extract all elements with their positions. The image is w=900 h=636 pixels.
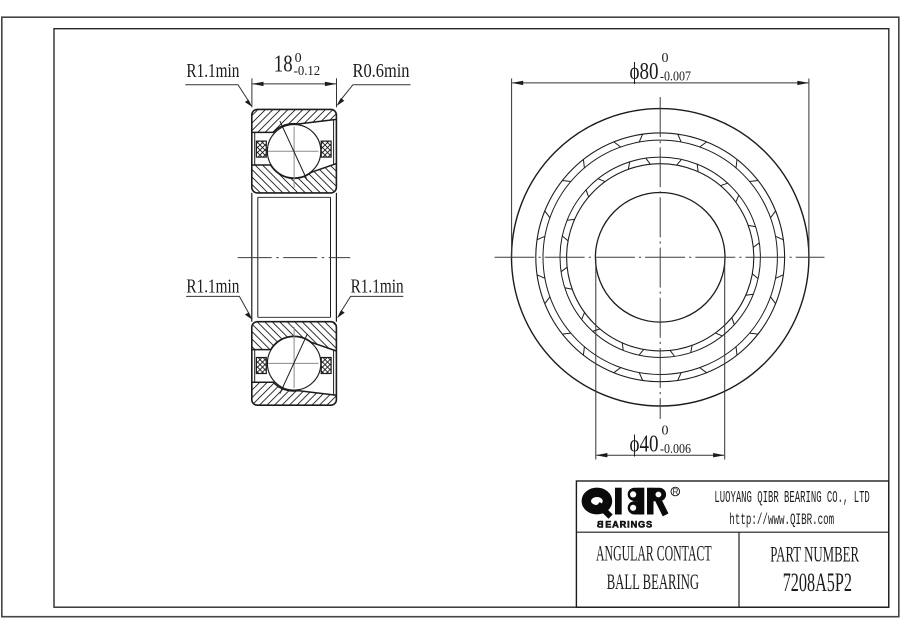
svg-text:R1.1min: R1.1min: [186, 276, 239, 298]
svg-text:BALL BEARING: BALL BEARING: [607, 569, 699, 594]
svg-text:R1.1min: R1.1min: [186, 60, 239, 82]
svg-text:B: B: [597, 520, 604, 530]
svg-text:ϕ80: ϕ80: [630, 59, 659, 85]
svg-text:ANGULAR CONTACT: ANGULAR CONTACT: [596, 541, 712, 566]
svg-text:LUOYANG QIBR BEARING CO., LTD: LUOYANG QIBR BEARING CO., LTD: [714, 488, 869, 507]
svg-text:0: 0: [662, 424, 669, 439]
svg-text:18: 18: [274, 52, 293, 78]
svg-text:7208A5P2: 7208A5P2: [783, 568, 852, 597]
svg-text:-0.007: -0.007: [660, 69, 691, 84]
svg-text:ϕ40: ϕ40: [630, 431, 659, 457]
svg-text:0: 0: [662, 51, 669, 66]
svg-text:R: R: [673, 488, 679, 497]
svg-text:http://www.QIBR.com: http://www.QIBR.com: [729, 511, 834, 529]
svg-text:-0.12: -0.12: [294, 64, 321, 79]
svg-text:PART NUMBER: PART NUMBER: [770, 542, 859, 567]
svg-text:R0.6min: R0.6min: [353, 60, 410, 82]
svg-text:-0.006: -0.006: [660, 442, 691, 457]
svg-text:EARINGS: EARINGS: [605, 520, 652, 530]
svg-text:R1.1min: R1.1min: [351, 276, 404, 298]
